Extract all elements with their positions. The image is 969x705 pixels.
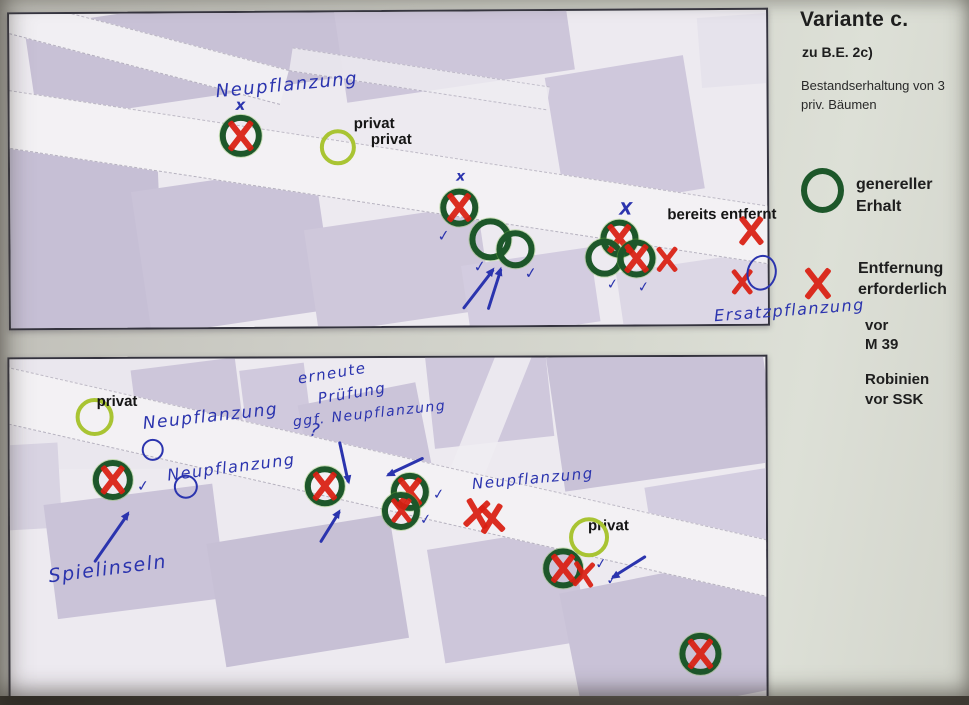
legend-remove-label: Entfernung erforderlich [858,258,947,300]
removal-x-marker [225,120,257,152]
checkmark-annotation: ✓ [432,487,445,502]
legend-keep-line2: Erhalt [856,198,901,215]
handwritten-label: Neupflanzung [471,464,594,493]
legend-note-line1: Bestandserhaltung von 3 [801,78,945,93]
legend-title: Variante c. [800,8,908,32]
legend-vor-m39: vor M 39 [865,316,898,354]
printed-label: privat [371,131,412,148]
checkmark-annotation: ✓ [524,265,538,281]
legend-note-line2: priv. Bäumen [801,97,877,112]
map-panel-top: Neupflanzungxprivatprivatx✓✓✓Xbereits en… [7,8,770,331]
annotation-arrow [319,510,341,543]
printed-label: privat [97,393,138,410]
preserve-circle-with-removal-x-marker [305,466,345,506]
handwritten-label: Neupflanzung [142,399,279,434]
removal-x-marker [444,192,474,222]
checkmark-annotation: ✓ [437,228,451,244]
removal-x-marker [98,465,128,495]
map-panel-bottom: privatNeupflanzungNeupflanzung✓Spielinse… [7,355,768,704]
removal-x-marker [475,502,508,535]
checkmark-annotation: ✓ [594,557,607,572]
legend-vor-line2: M 39 [865,336,898,353]
preserve-circle-with-removal-x-marker [440,188,478,226]
legend-remove-line1: Entfernung [858,260,943,277]
legend-rob-line2: vor SSK [865,391,923,408]
legend-keep-label: genereller Erhalt [856,174,932,218]
keep-circle-icon [801,168,844,213]
preserve-circle-with-removal-x-marker [93,460,133,500]
preserve-circle-with-removal-x-marker [220,115,262,157]
photographed-plan-document: Neupflanzungxprivatprivatx✓✓✓Xbereits en… [0,0,969,705]
preserve-circle-with-removal-x-marker [617,239,655,277]
printed-label: privat [354,115,395,132]
preserve-circle-with-removal-x-marker [679,633,721,675]
handwritten-label: ? [308,420,322,442]
removal-x-marker [569,560,598,589]
handwritten-x-marker: X [619,202,632,219]
preserve-circle-marker [496,230,534,268]
removal-x-marker [736,216,766,246]
legend-rob-line1: Robinien [865,371,929,388]
removal-x-marker [684,638,716,670]
checkmark-annotation: ✓ [473,259,487,275]
checkmark-annotation: ✓ [606,277,619,292]
legend-vor-line1: vor [865,317,888,334]
checkmark-annotation: ✓ [136,478,150,494]
handwritten-label: Spielinseln [47,551,168,588]
removal-x-marker [310,471,340,501]
private-tree-circle-marker [320,129,356,165]
legend-note: Bestandserhaltung von 3 priv. Bäumen [801,76,945,114]
removal-x-marker [388,498,414,524]
checkmark-annotation: ✓ [419,512,432,527]
removal-x-marker [621,243,651,273]
preserve-circle-with-removal-x-marker [382,492,420,530]
handwritten-circle-marker [174,475,198,499]
photo-edge-shadow [0,696,969,705]
handwritten-x-marker: x [236,98,246,113]
handwritten-x-marker: x [456,170,465,184]
legend-subtitle: zu B.E. 2c) [802,44,873,60]
annotation-arrow [612,555,647,578]
removal-x-icon [803,267,832,300]
legend-robinien-ssk: Robinien vor SSK [865,370,929,410]
checkmark-annotation: ✓ [637,280,650,295]
legend-keep-line1: genereller [856,176,932,193]
handwritten-circle-marker [142,439,164,461]
legend-remove-line2: erforderlich [858,281,947,298]
legend-panel: Variante c. zu B.E. 2c) Bestandserhaltun… [786,0,969,705]
removal-x-marker [653,246,680,273]
